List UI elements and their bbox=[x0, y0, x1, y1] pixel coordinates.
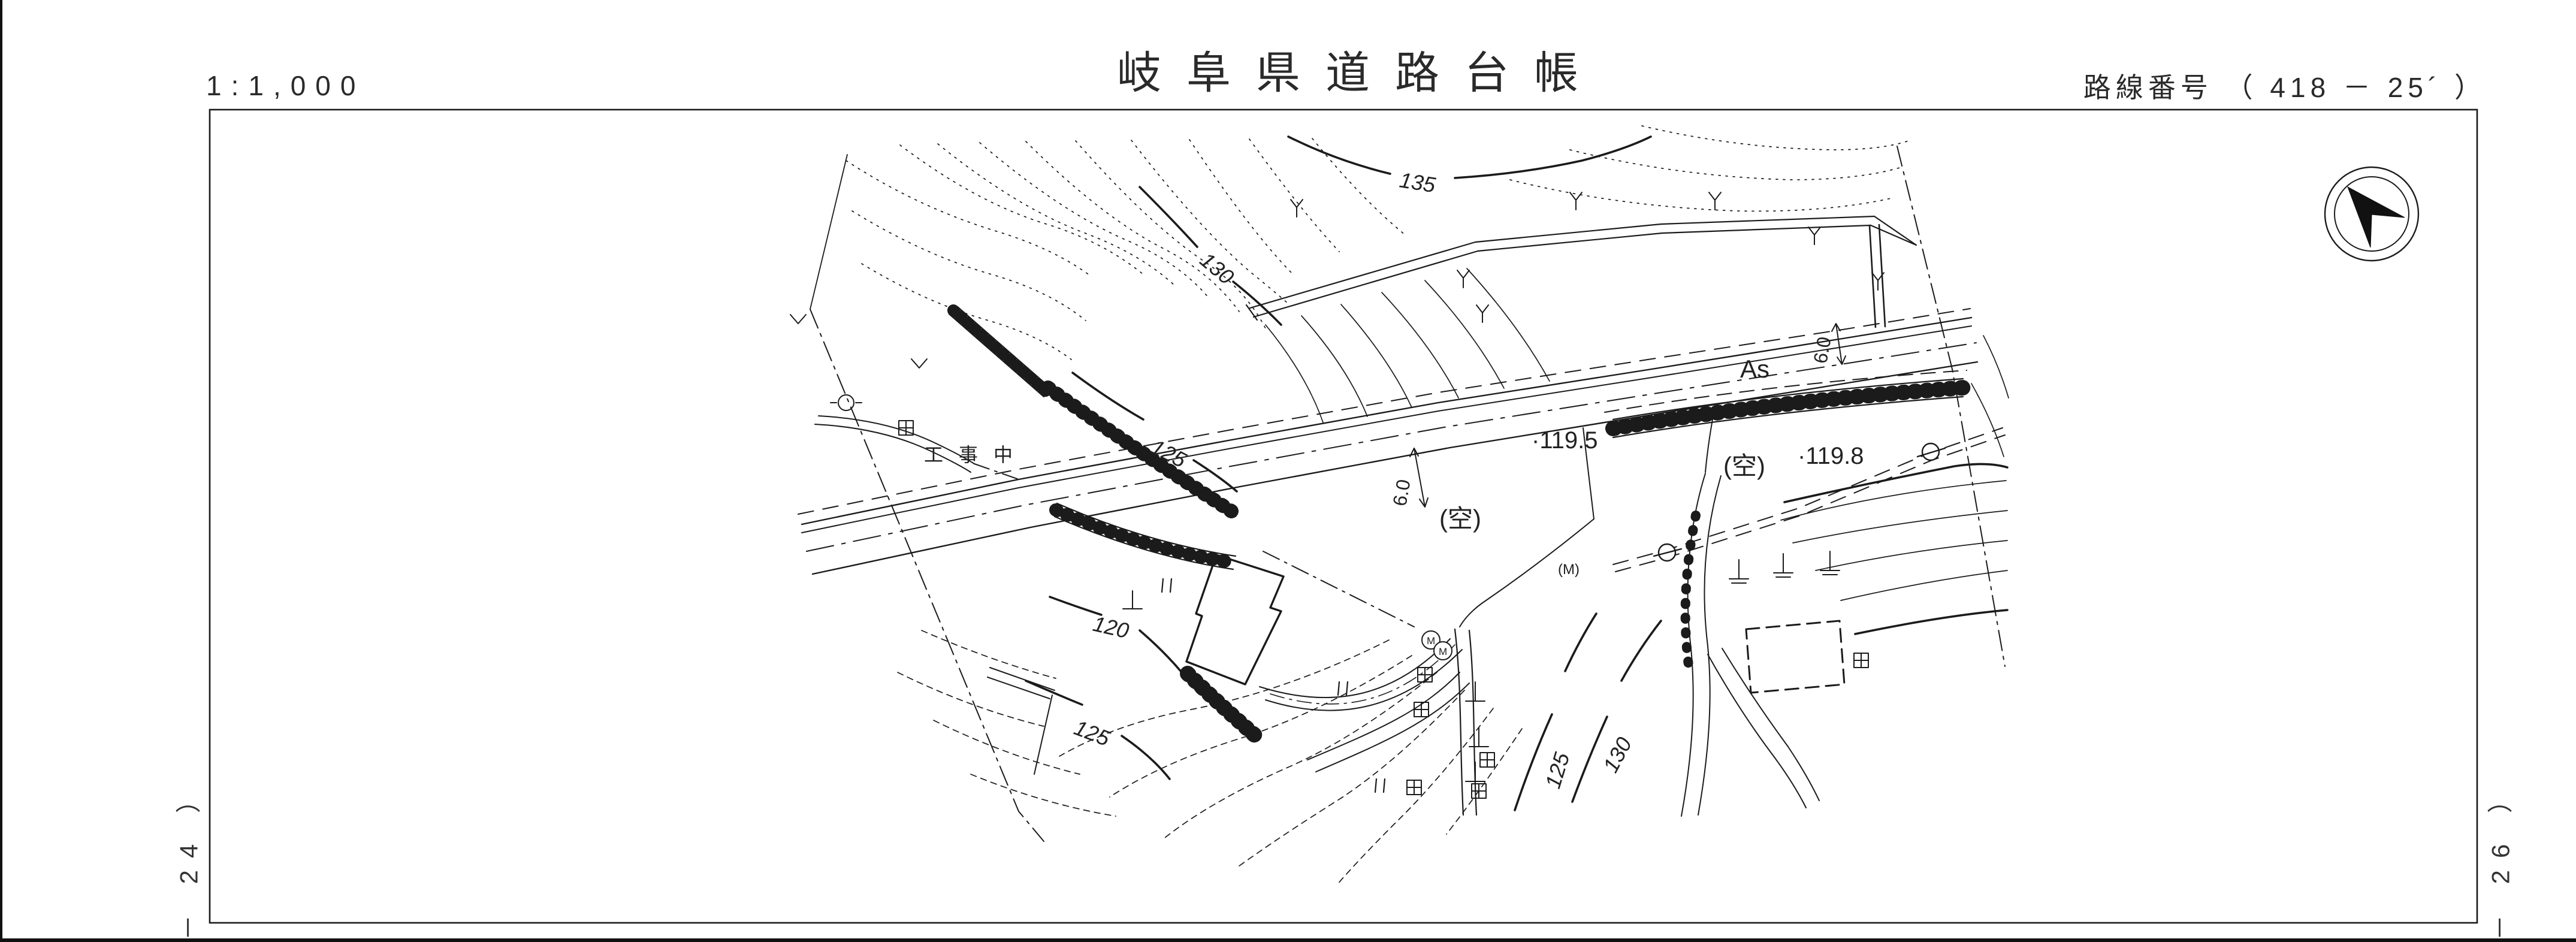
road-shoulder-dashed bbox=[798, 309, 1970, 514]
contour-label-130-lower-right: 130 bbox=[1598, 733, 1636, 776]
manhole-label-3: (M) bbox=[1558, 561, 1580, 578]
manhole-label-2: M bbox=[1439, 646, 1447, 657]
main-road bbox=[798, 309, 1977, 574]
north-arrow-icon bbox=[2325, 167, 2418, 261]
vacant-lot-label-1: (空) bbox=[1439, 505, 1481, 533]
slope-foot-marks bbox=[1123, 551, 1840, 781]
width-dimension-arrows bbox=[1410, 324, 1846, 507]
manhole-label-1: M bbox=[1427, 635, 1435, 647]
road-width-label-2: 6.0 bbox=[1809, 335, 1835, 365]
contour-label-130-upper: 130 bbox=[1195, 247, 1239, 289]
construction-label: 工事中 bbox=[924, 444, 1028, 466]
contour-label-125-lower-left: 125 bbox=[1071, 715, 1114, 751]
road-edge-top-inner bbox=[802, 326, 1971, 533]
spot-elevation-1: ·119.5 bbox=[1532, 427, 1597, 454]
building-outline bbox=[1186, 555, 1284, 684]
road-width-label-1: 6.0 bbox=[1388, 478, 1414, 508]
spot-elevation-2: ·119.8 bbox=[1798, 443, 1864, 469]
contour-label-120: 120 bbox=[1091, 611, 1131, 643]
contour-label-135: 135 bbox=[1398, 167, 1438, 197]
vacant-lot-label-2: (空) bbox=[1723, 452, 1765, 480]
vegetation-marks bbox=[790, 192, 1884, 368]
contour-lines-upper bbox=[846, 126, 1908, 360]
road-surface-label: As bbox=[1740, 355, 1769, 383]
tree-symbol bbox=[831, 395, 862, 410]
lanes bbox=[1260, 473, 1819, 816]
map-frame bbox=[210, 110, 2477, 923]
planned-building-dashed bbox=[1746, 621, 1844, 693]
road-edge-top bbox=[802, 318, 1971, 524]
map-drawing: As ·119.5 ·119.8 (空) (空) 工事中 6.0 6.0 M M… bbox=[0, 0, 2576, 942]
contour-fan bbox=[1266, 268, 2009, 600]
parcel-lines bbox=[815, 416, 1713, 774]
road-ledger-sheet: { "document": { "scale": "1:1,000", "tit… bbox=[0, 0, 2576, 942]
contour-label-125-lower-right: 125 bbox=[1540, 749, 1574, 791]
